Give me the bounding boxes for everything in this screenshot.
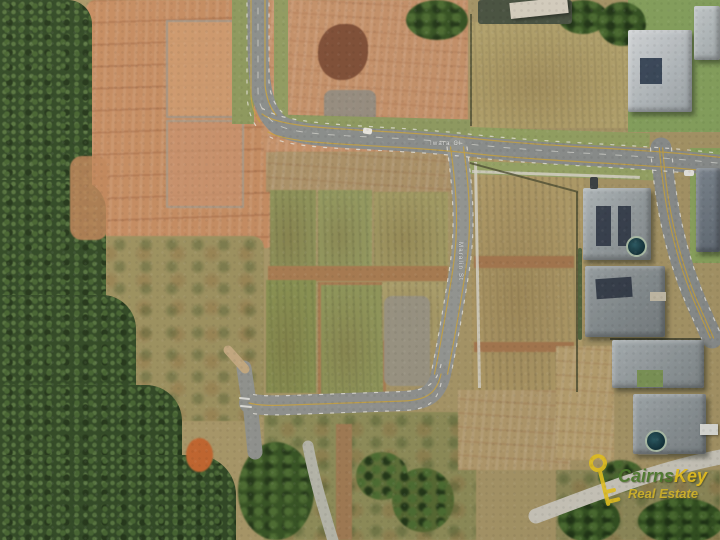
watermark-logo: CairnsKey Real Estate bbox=[588, 448, 720, 528]
watermark-tagline: Real Estate bbox=[628, 486, 698, 501]
watermark-brand-second: Key bbox=[674, 466, 707, 486]
solar-panels bbox=[596, 206, 611, 246]
watermark-brand-first: Cairns bbox=[618, 466, 674, 486]
house-roof bbox=[696, 168, 720, 252]
pavement-marking bbox=[240, 398, 249, 399]
watermark-brand: CairnsKey bbox=[618, 466, 707, 487]
car bbox=[590, 177, 598, 189]
round-pool bbox=[626, 236, 647, 257]
solar-panels bbox=[640, 58, 662, 84]
street-label: Iwara Cl bbox=[430, 141, 462, 147]
house-roof bbox=[694, 6, 720, 60]
pavement-marking bbox=[241, 406, 251, 407]
courtyard-lawn bbox=[637, 370, 663, 387]
driveway bbox=[650, 292, 666, 301]
hammerhead-stub bbox=[250, 402, 255, 452]
car bbox=[363, 127, 373, 134]
solar-panels bbox=[595, 277, 632, 299]
trailer bbox=[700, 424, 718, 435]
car bbox=[684, 170, 694, 176]
street-label: Maralin St bbox=[457, 242, 463, 281]
drain-channel bbox=[308, 446, 334, 540]
house-roof bbox=[633, 394, 706, 454]
aerial-photo: Iwara Cl Maralin St CairnsKey Real Estat… bbox=[0, 0, 720, 540]
dirt-track bbox=[228, 350, 245, 369]
